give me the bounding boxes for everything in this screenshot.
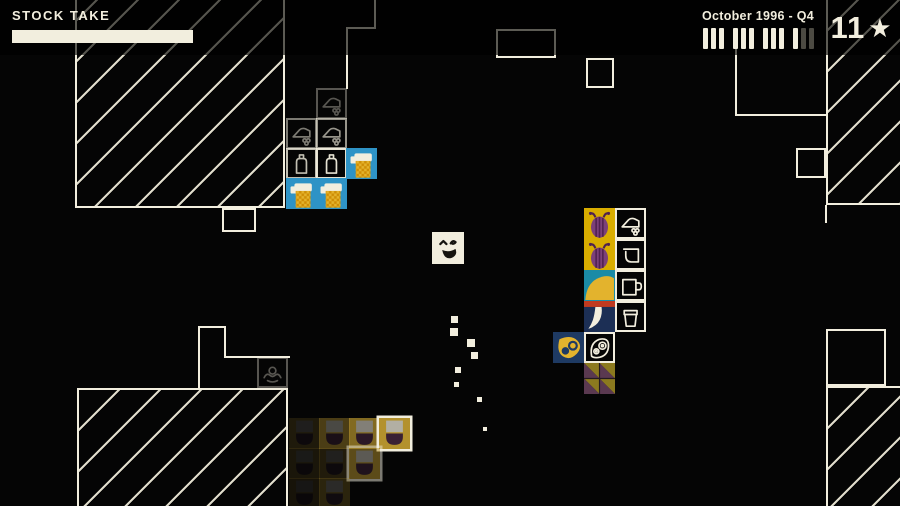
tally-bar-filled	[733, 28, 738, 49]
tile-cup	[615, 301, 646, 332]
tile-jar	[349, 448, 380, 479]
tile-jar	[319, 418, 350, 449]
trail-dot	[454, 382, 459, 387]
tile-jar	[289, 478, 320, 506]
tile-paw	[553, 332, 584, 363]
tally-bar-filled	[741, 28, 746, 49]
tile-beer-mug	[346, 148, 377, 179]
stock-take-progress-fill	[12, 30, 193, 43]
tally-bar-filled	[719, 28, 724, 49]
hud: STOCK TAKE October 1996 - Q4 11 ★	[0, 0, 900, 55]
wall-outline-box	[796, 449, 824, 506]
game-viewport[interactable]: STOCK TAKE October 1996 - Q4 11 ★	[0, 0, 900, 506]
quarter-tally	[698, 28, 818, 49]
tile-jar	[289, 448, 320, 479]
tally-group-q1	[703, 28, 724, 49]
wall-hatched-block	[77, 388, 288, 506]
wall-line	[735, 114, 827, 116]
tile-beet	[584, 208, 615, 239]
date-panel: October 1996 - Q4	[698, 9, 818, 49]
wall-hatched-block	[826, 386, 900, 506]
tile-jar	[379, 418, 410, 449]
tally-group-q2	[733, 28, 754, 49]
tile-skate	[615, 208, 646, 239]
stock-take-progress-bar	[12, 30, 193, 43]
trail-dot	[477, 397, 482, 402]
wall-line	[198, 326, 200, 389]
tile-mug	[615, 270, 646, 301]
wall-outline-box	[222, 208, 256, 232]
tile-leaf	[584, 332, 615, 363]
tile-jar	[289, 418, 320, 449]
wall-outline-box	[796, 148, 826, 178]
date-label: October 1996 - Q4	[698, 9, 818, 23]
wall-outline-box	[826, 329, 886, 386]
tally-bar-filled	[703, 28, 708, 49]
tally-bar-filled	[779, 28, 784, 49]
score-box: 11 ★	[824, 10, 898, 46]
trail-dot	[467, 339, 475, 347]
tally-group-q4	[793, 28, 814, 49]
trail-dot	[483, 427, 487, 431]
tile-beer-mug	[316, 178, 347, 209]
player-character[interactable]	[432, 232, 464, 264]
tally-bar-filled	[763, 28, 768, 49]
tile-jar	[349, 418, 380, 449]
tally-bar-filled	[749, 28, 754, 49]
tile-flask	[316, 148, 347, 179]
tally-group-q3	[763, 28, 784, 49]
star-icon: ★	[868, 15, 891, 41]
trail-dot	[455, 367, 461, 373]
tally-bar-filled	[771, 28, 776, 49]
trail-dot	[451, 316, 458, 323]
tile-beet	[584, 239, 615, 270]
trail-dot	[450, 328, 458, 336]
tile-flask	[286, 148, 317, 179]
tile-squid	[257, 357, 288, 388]
wall-outline-box	[586, 58, 614, 88]
tile-skate	[286, 118, 317, 149]
tile-triangles	[584, 363, 615, 394]
stock-take-panel: STOCK TAKE	[12, 8, 193, 43]
tile-jug	[615, 239, 646, 270]
tile-jar	[319, 448, 350, 479]
tile-skate	[316, 88, 347, 119]
tally-bar-empty	[801, 28, 806, 49]
tile-skate	[316, 118, 347, 149]
stock-take-label: STOCK TAKE	[12, 8, 193, 23]
wall-line	[825, 205, 827, 223]
tally-bar-filled	[711, 28, 716, 49]
score-value: 11	[830, 10, 865, 46]
tile-jar	[319, 478, 350, 506]
laughing-face	[432, 232, 464, 264]
trail-dot	[471, 352, 478, 359]
tally-bar-filled	[793, 28, 798, 49]
wall-line	[198, 326, 226, 328]
tile-beer-mug	[286, 178, 317, 209]
tile-banana	[584, 270, 615, 301]
tally-bar-empty	[809, 28, 814, 49]
tile-tusk	[584, 301, 615, 332]
wall-line	[735, 45, 737, 116]
wall-line	[224, 326, 226, 357]
